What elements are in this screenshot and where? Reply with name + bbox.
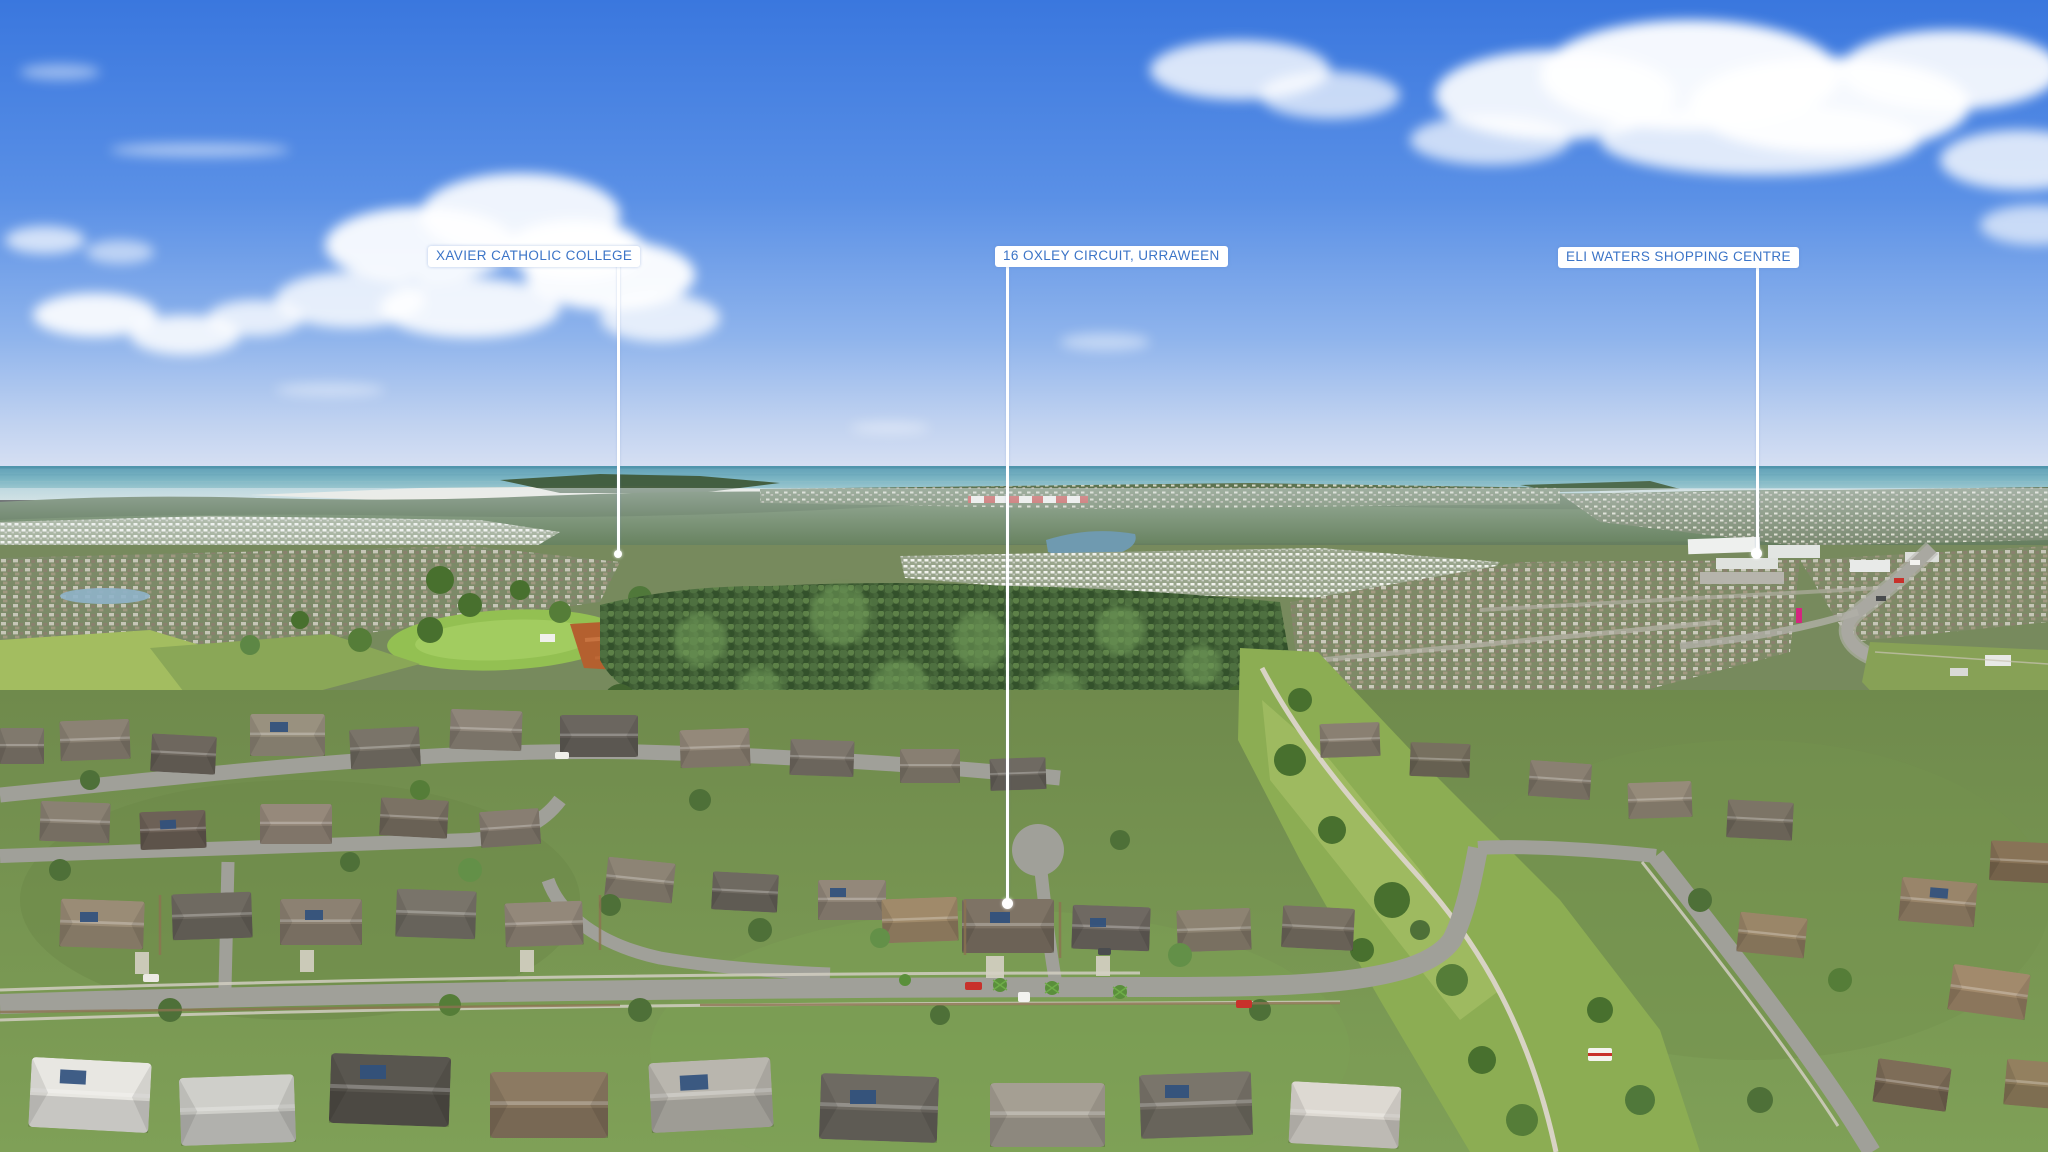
sky <box>0 0 2048 470</box>
foreground-suburb <box>0 648 2048 1152</box>
scene-illustration <box>0 0 2048 1152</box>
cul-de-sac <box>1012 824 1064 876</box>
location-dot-eli <box>1751 548 1762 559</box>
callout-label-oxley: 16 OXLEY CIRCUIT, URRAWEEN <box>995 246 1228 267</box>
callout-label-eli: ELI WATERS SHOPPING CENTRE <box>1558 247 1799 268</box>
leader-line-eli <box>1756 264 1759 550</box>
location-dot-xavier <box>614 550 622 558</box>
callout-label-xavier: XAVIER CATHOLIC COLLEGE <box>428 246 640 267</box>
aerial-photo: XAVIER CATHOLIC COLLEGE 16 OXLEY CIRCUIT… <box>0 0 2048 1152</box>
location-dot-oxley <box>1002 898 1013 909</box>
leader-line-xavier <box>617 263 620 554</box>
leader-line-oxley <box>1006 263 1009 901</box>
